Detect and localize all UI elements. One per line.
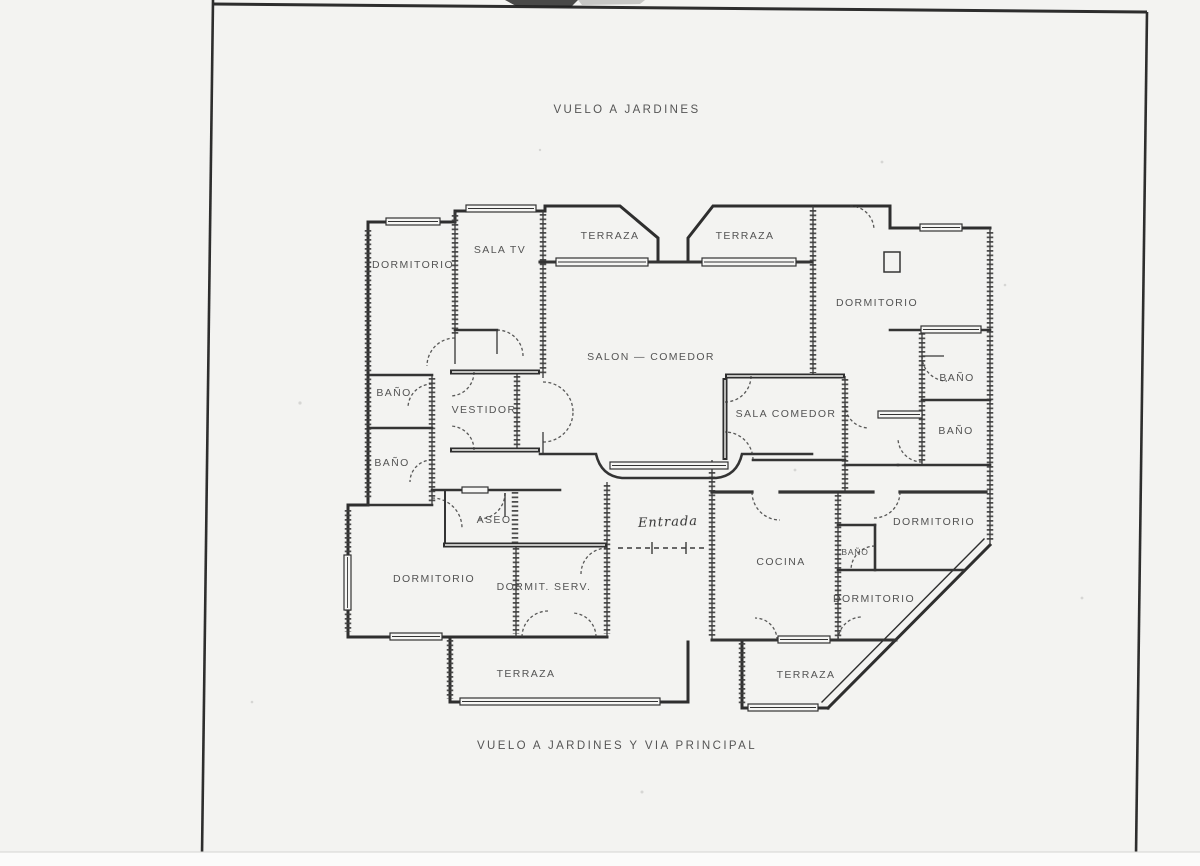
room-label-vestidor: VESTIDOR bbox=[452, 404, 517, 416]
scan-specks bbox=[251, 149, 1084, 794]
room-label-entrada-handwritten: Entrada bbox=[637, 514, 699, 531]
room-label-terraza-top-right: TERRAZA bbox=[716, 230, 775, 242]
room-label-sala-comedor: SALA COMEDOR bbox=[736, 408, 837, 420]
room-label-aseo: ASEO bbox=[477, 514, 512, 526]
scan-smudge bbox=[505, 0, 578, 7]
room-label-bano-left-1: BAÑO bbox=[376, 386, 411, 399]
title-bottom: VUELO A JARDINES Y VIA PRINCIPAL bbox=[477, 740, 757, 752]
closet-stub bbox=[884, 252, 900, 272]
room-label-terraza-bottom-right: TERRAZA bbox=[777, 669, 836, 681]
wall-baselines bbox=[432, 206, 990, 640]
room-label-bano-servicio: BAÑO bbox=[841, 547, 868, 557]
room-label-terraza-bottom-left: TERRAZA bbox=[497, 668, 556, 680]
room-label-dormitorio-right-lower: DORMITORIO bbox=[833, 593, 915, 605]
outer-walls bbox=[348, 206, 990, 708]
room-label-dormitorio-right-upper: DORMITORIO bbox=[893, 516, 975, 528]
entrance-threshold bbox=[618, 542, 708, 554]
room-label-dormitorio-top-right: DORMITORIO bbox=[836, 297, 918, 309]
room-label-dormitorio-bottom-left: DORMITORIO bbox=[393, 573, 475, 585]
room-label-dormitorio-top-left: DORMITORIO bbox=[372, 259, 454, 271]
floor-plan-drawing: VUELO A JARDINES VUELO A JARDINES Y VIA … bbox=[0, 0, 1200, 866]
room-label-cocina: COCINA bbox=[756, 556, 805, 568]
room-labels: DORMITORIO SALA TV TERRAZA TERRAZA DORMI… bbox=[372, 230, 975, 681]
room-label-bano-right-1: BAÑO bbox=[939, 371, 974, 384]
room-label-bano-right-2: BAÑO bbox=[938, 424, 973, 437]
door-arcs bbox=[408, 206, 947, 640]
room-label-dormit-serv: DORMIT. SERV. bbox=[497, 581, 592, 593]
page-border-frame bbox=[0, 0, 1200, 866]
page-bottom-edge bbox=[0, 852, 1200, 866]
room-label-salon-comedor: SALON — COMEDOR bbox=[587, 351, 715, 363]
room-label-bano-left-2: BAÑO bbox=[374, 456, 409, 469]
room-label-sala-tv: SALA TV bbox=[474, 244, 526, 256]
title-top: VUELO A JARDINES bbox=[553, 104, 700, 116]
scanned-floor-plan-page: VUELO A JARDINES VUELO A JARDINES Y VIA … bbox=[0, 0, 1200, 866]
windows bbox=[344, 205, 981, 711]
room-label-terraza-top-left: TERRAZA bbox=[581, 230, 640, 242]
